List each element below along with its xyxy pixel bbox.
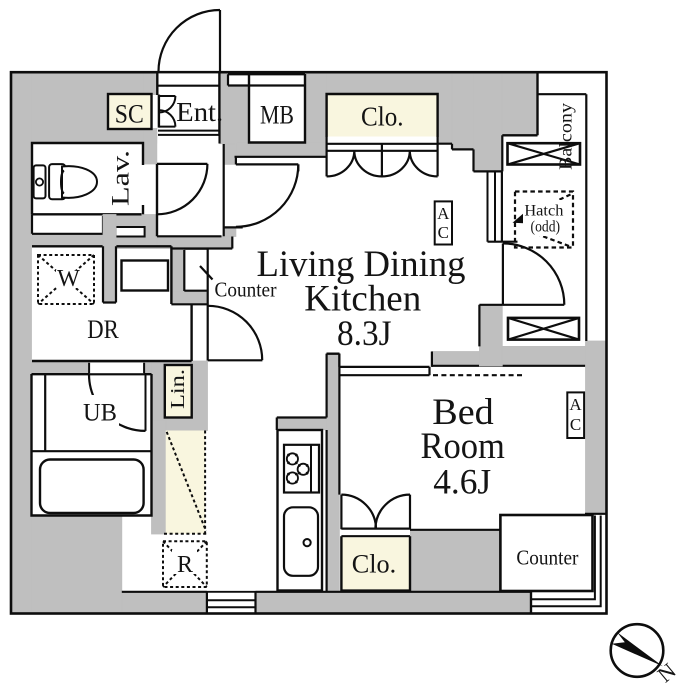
svg-text:C: C — [570, 415, 581, 434]
svg-text:Lin.: Lin. — [167, 369, 189, 409]
svg-text:DR: DR — [87, 315, 119, 344]
svg-text:A: A — [569, 395, 582, 414]
svg-text:Balcony: Balcony — [556, 103, 576, 170]
svg-text:A: A — [437, 204, 450, 223]
svg-text:R: R — [177, 552, 193, 578]
svg-text:Clo.: Clo. — [361, 102, 404, 132]
svg-text:W: W — [57, 266, 80, 292]
svg-text:Counter: Counter — [516, 545, 578, 569]
svg-text:8.3J: 8.3J — [337, 313, 392, 353]
svg-text:Hatch: Hatch — [524, 203, 563, 220]
svg-text:Ent.: Ent. — [176, 97, 223, 127]
svg-text:MB: MB — [260, 101, 294, 130]
svg-text:SC: SC — [115, 100, 144, 129]
svg-text:Clo.: Clo. — [352, 550, 397, 579]
svg-text:Lav.: Lav. — [107, 150, 134, 206]
svg-text:4.6J: 4.6J — [433, 461, 491, 501]
svg-text:C: C — [438, 223, 449, 242]
svg-text:UB: UB — [83, 400, 117, 427]
svg-text:(odd): (odd) — [531, 219, 561, 236]
